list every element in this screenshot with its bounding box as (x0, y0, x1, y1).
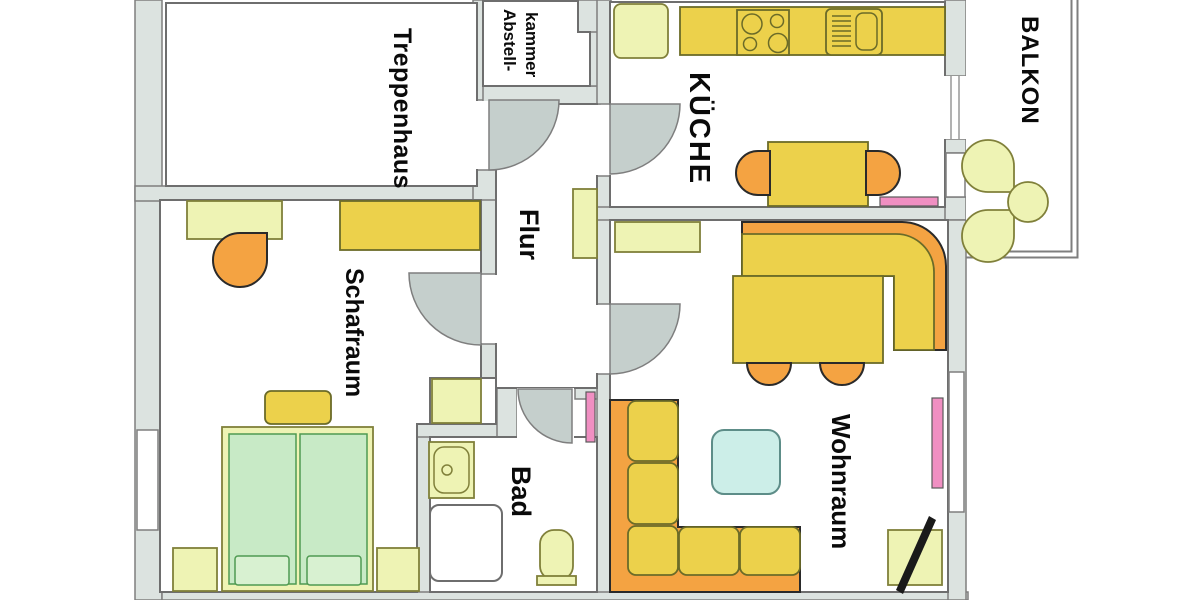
wall-segment (945, 197, 966, 220)
pillow (235, 556, 289, 585)
label-abstellkammer-line1: Abstell- (500, 9, 519, 71)
label-abstellkammer-line2: kammer (522, 12, 541, 78)
sofa-cushion (628, 401, 678, 461)
opening-balkon-door (944, 76, 967, 139)
desk-chair (213, 233, 267, 287)
label-wohnraum: Wohnraum (826, 414, 856, 549)
radiator-wohnraum (932, 398, 943, 488)
kitchen-table (768, 142, 868, 206)
wall-segment (597, 207, 966, 220)
kitchen-chair (866, 151, 900, 195)
sofa-cushion (628, 526, 678, 575)
wardrobe (340, 201, 480, 250)
sofa-cushion (628, 463, 678, 524)
wall-segment (945, 0, 966, 76)
wall-segment (597, 374, 611, 600)
label-kueche: KÜCHE (683, 72, 716, 185)
kitchen-chair (736, 151, 770, 195)
opening-schafraum (479, 275, 498, 343)
window-wohnraum-east (949, 372, 964, 512)
floor-plan-canvas: Treppenhaus Abstell- kammer KÜCHE Flur S… (0, 0, 1200, 600)
label-bad: Bad (506, 466, 536, 517)
sofa-cushion (679, 527, 739, 575)
wall-segment (135, 186, 497, 201)
fridge (614, 4, 668, 58)
toilet-bowl (540, 530, 573, 580)
sink-drainer (832, 16, 851, 46)
wall-segment (481, 200, 496, 274)
balcony-chair (962, 210, 1014, 262)
wall-segment (597, 0, 611, 104)
balcony-chair (962, 140, 1014, 192)
hall-cabinet-tall (573, 189, 597, 258)
dresser (265, 391, 331, 424)
label-flur: Flur (514, 209, 544, 260)
pillow (307, 556, 361, 585)
nightstand (173, 548, 217, 591)
floor-plan: Treppenhaus Abstell- kammer KÜCHE Flur S… (0, 0, 1200, 600)
hall-cabinet-niche (432, 379, 481, 423)
radiator-kueche (880, 197, 938, 206)
sideboard (615, 222, 700, 252)
label-balkon: BALKON (1016, 16, 1043, 125)
toilet-base (537, 576, 576, 585)
label-schafraum: Schafraum (340, 268, 368, 397)
wall-segment (597, 176, 611, 304)
dining-table (733, 276, 883, 363)
balcony-table (1008, 182, 1048, 222)
shower (430, 505, 502, 581)
wall-segment (481, 344, 496, 382)
nightstand (377, 548, 419, 591)
wall-segment (945, 139, 966, 153)
coffee-table (712, 430, 780, 494)
kitchen-counter (680, 7, 945, 55)
radiator-bad (586, 392, 595, 442)
window-left-wall (137, 430, 158, 530)
wall-segment (497, 386, 517, 437)
label-treppenhaus: Treppenhaus (388, 28, 416, 189)
wall-segment (162, 592, 968, 600)
sofa-cushion (740, 527, 800, 575)
room-treppenhaus-floor (166, 3, 477, 186)
